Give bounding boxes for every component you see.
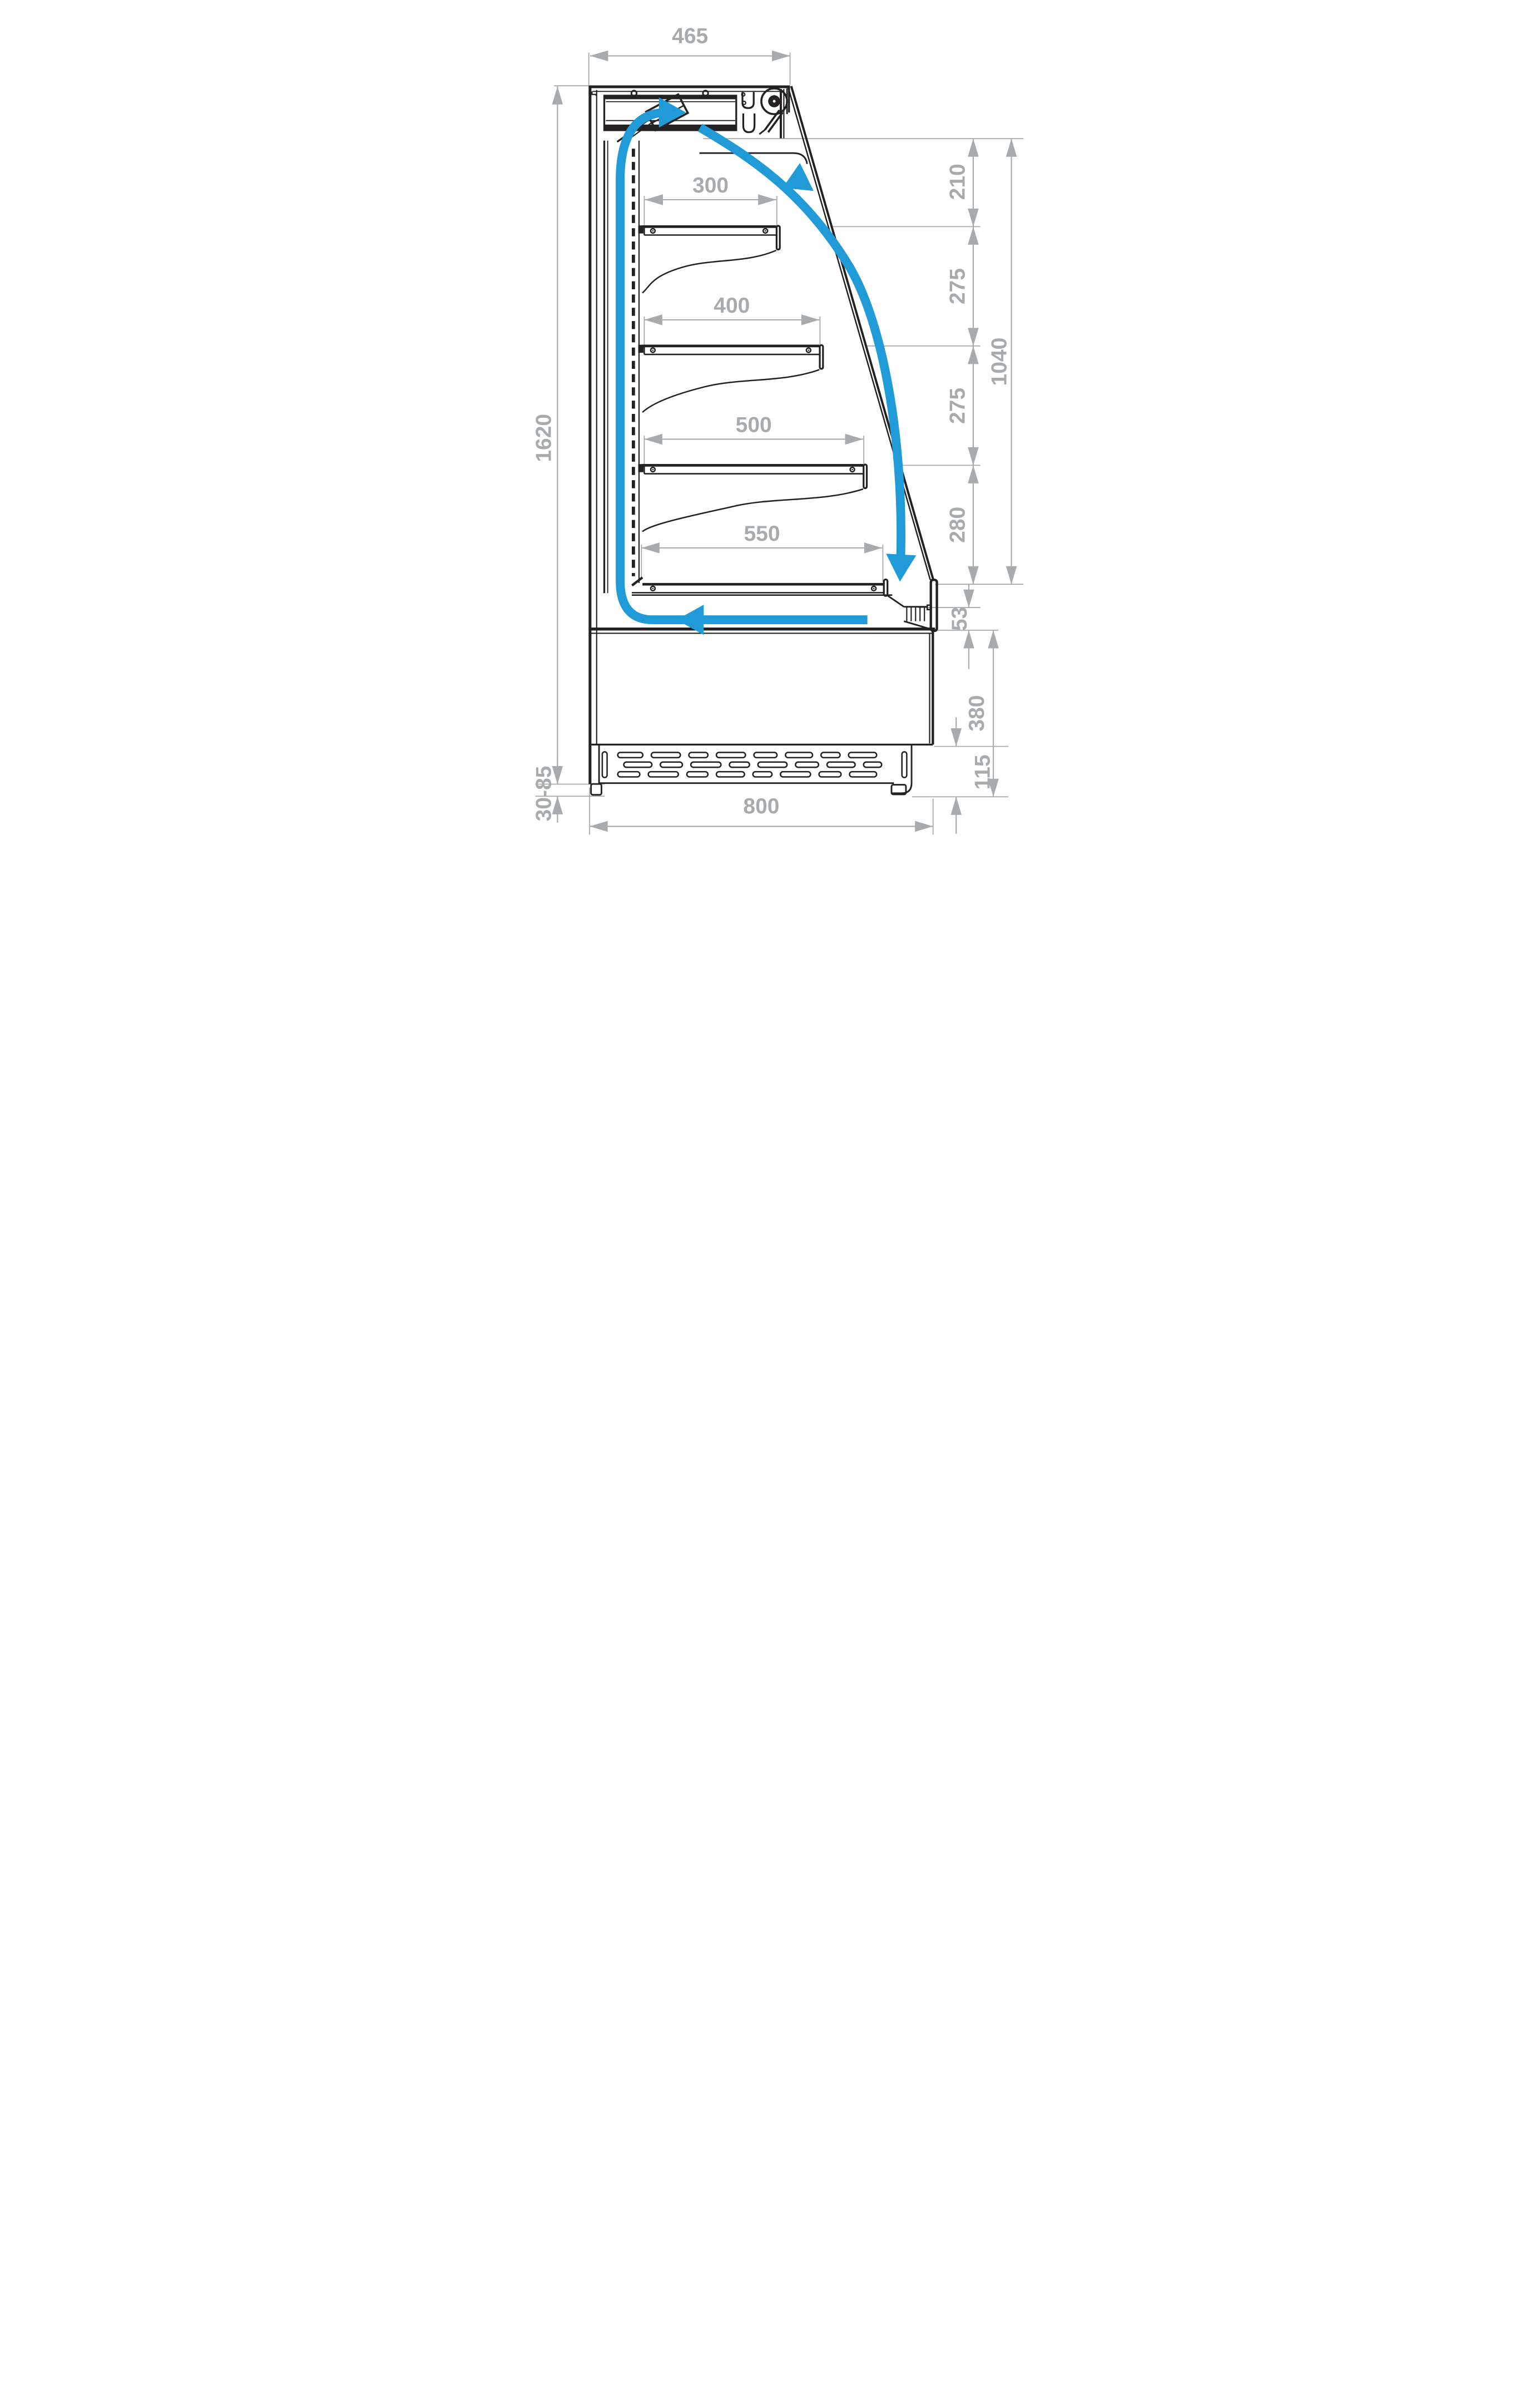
diagram-stage: 465 1620 30-85 800 300 400 500 550 210 2… (492, 0, 1048, 867)
adjustable-feet (591, 784, 905, 795)
cabinet-drawing (588, 86, 937, 795)
clamps (741, 92, 754, 132)
dim-gap-3: 275 (945, 388, 969, 424)
dimension-lines (557, 56, 1011, 833)
shelf-front-lip (776, 226, 780, 250)
dimension-layer: 465 1620 30-85 800 300 400 500 550 210 2… (532, 24, 1023, 835)
shelf-1 (638, 225, 780, 293)
mounting-screw-icon (702, 91, 707, 96)
dim-overall-depth: 800 (743, 794, 779, 818)
dim-shelf-4-depth: 550 (744, 522, 780, 546)
shelf-underside-curve (642, 369, 819, 412)
dim-leg-adjustment: 30-85 (532, 766, 556, 822)
front-intake (887, 580, 937, 631)
dim-shelf-2-depth: 400 (714, 294, 750, 318)
bottom-shelf-lip (884, 580, 888, 596)
dim-display-opening-height: 1040 (987, 338, 1011, 386)
dim-shelf-1-depth: 300 (692, 174, 729, 197)
shelf-front-lip (863, 465, 866, 488)
fan-unit (761, 88, 786, 114)
dim-base-height: 380 (964, 695, 988, 732)
shelf-underside-curve (642, 250, 776, 293)
airflow-arrow-diagonal-icon (783, 163, 814, 191)
mounting-screw-icon (631, 91, 636, 96)
back-wall (590, 86, 638, 784)
shelf-3 (638, 464, 866, 531)
dim-overall-height: 1620 (532, 414, 556, 462)
dim-gap-1: 210 (945, 164, 969, 200)
front-glass (788, 86, 933, 581)
display-case-cross-section: 465 1620 30-85 800 300 400 500 550 210 2… (492, 0, 1048, 867)
bottom-shelf (631, 577, 892, 596)
dim-gap-2: 275 (945, 268, 969, 304)
dim-canopy-depth: 465 (672, 24, 708, 48)
dim-intake-gap: 53 (948, 607, 972, 631)
airflow-arrow-curtain-end-icon (886, 554, 916, 581)
vent-grille (599, 744, 912, 793)
base-unit (590, 629, 935, 795)
shelf-front-lip (820, 345, 823, 369)
dim-plinth-height: 115 (970, 754, 994, 789)
shelf-2 (638, 345, 823, 412)
dim-gap-4: 280 (945, 507, 969, 543)
airflow-curtain (700, 127, 900, 569)
dim-shelf-3-depth: 500 (735, 413, 771, 437)
